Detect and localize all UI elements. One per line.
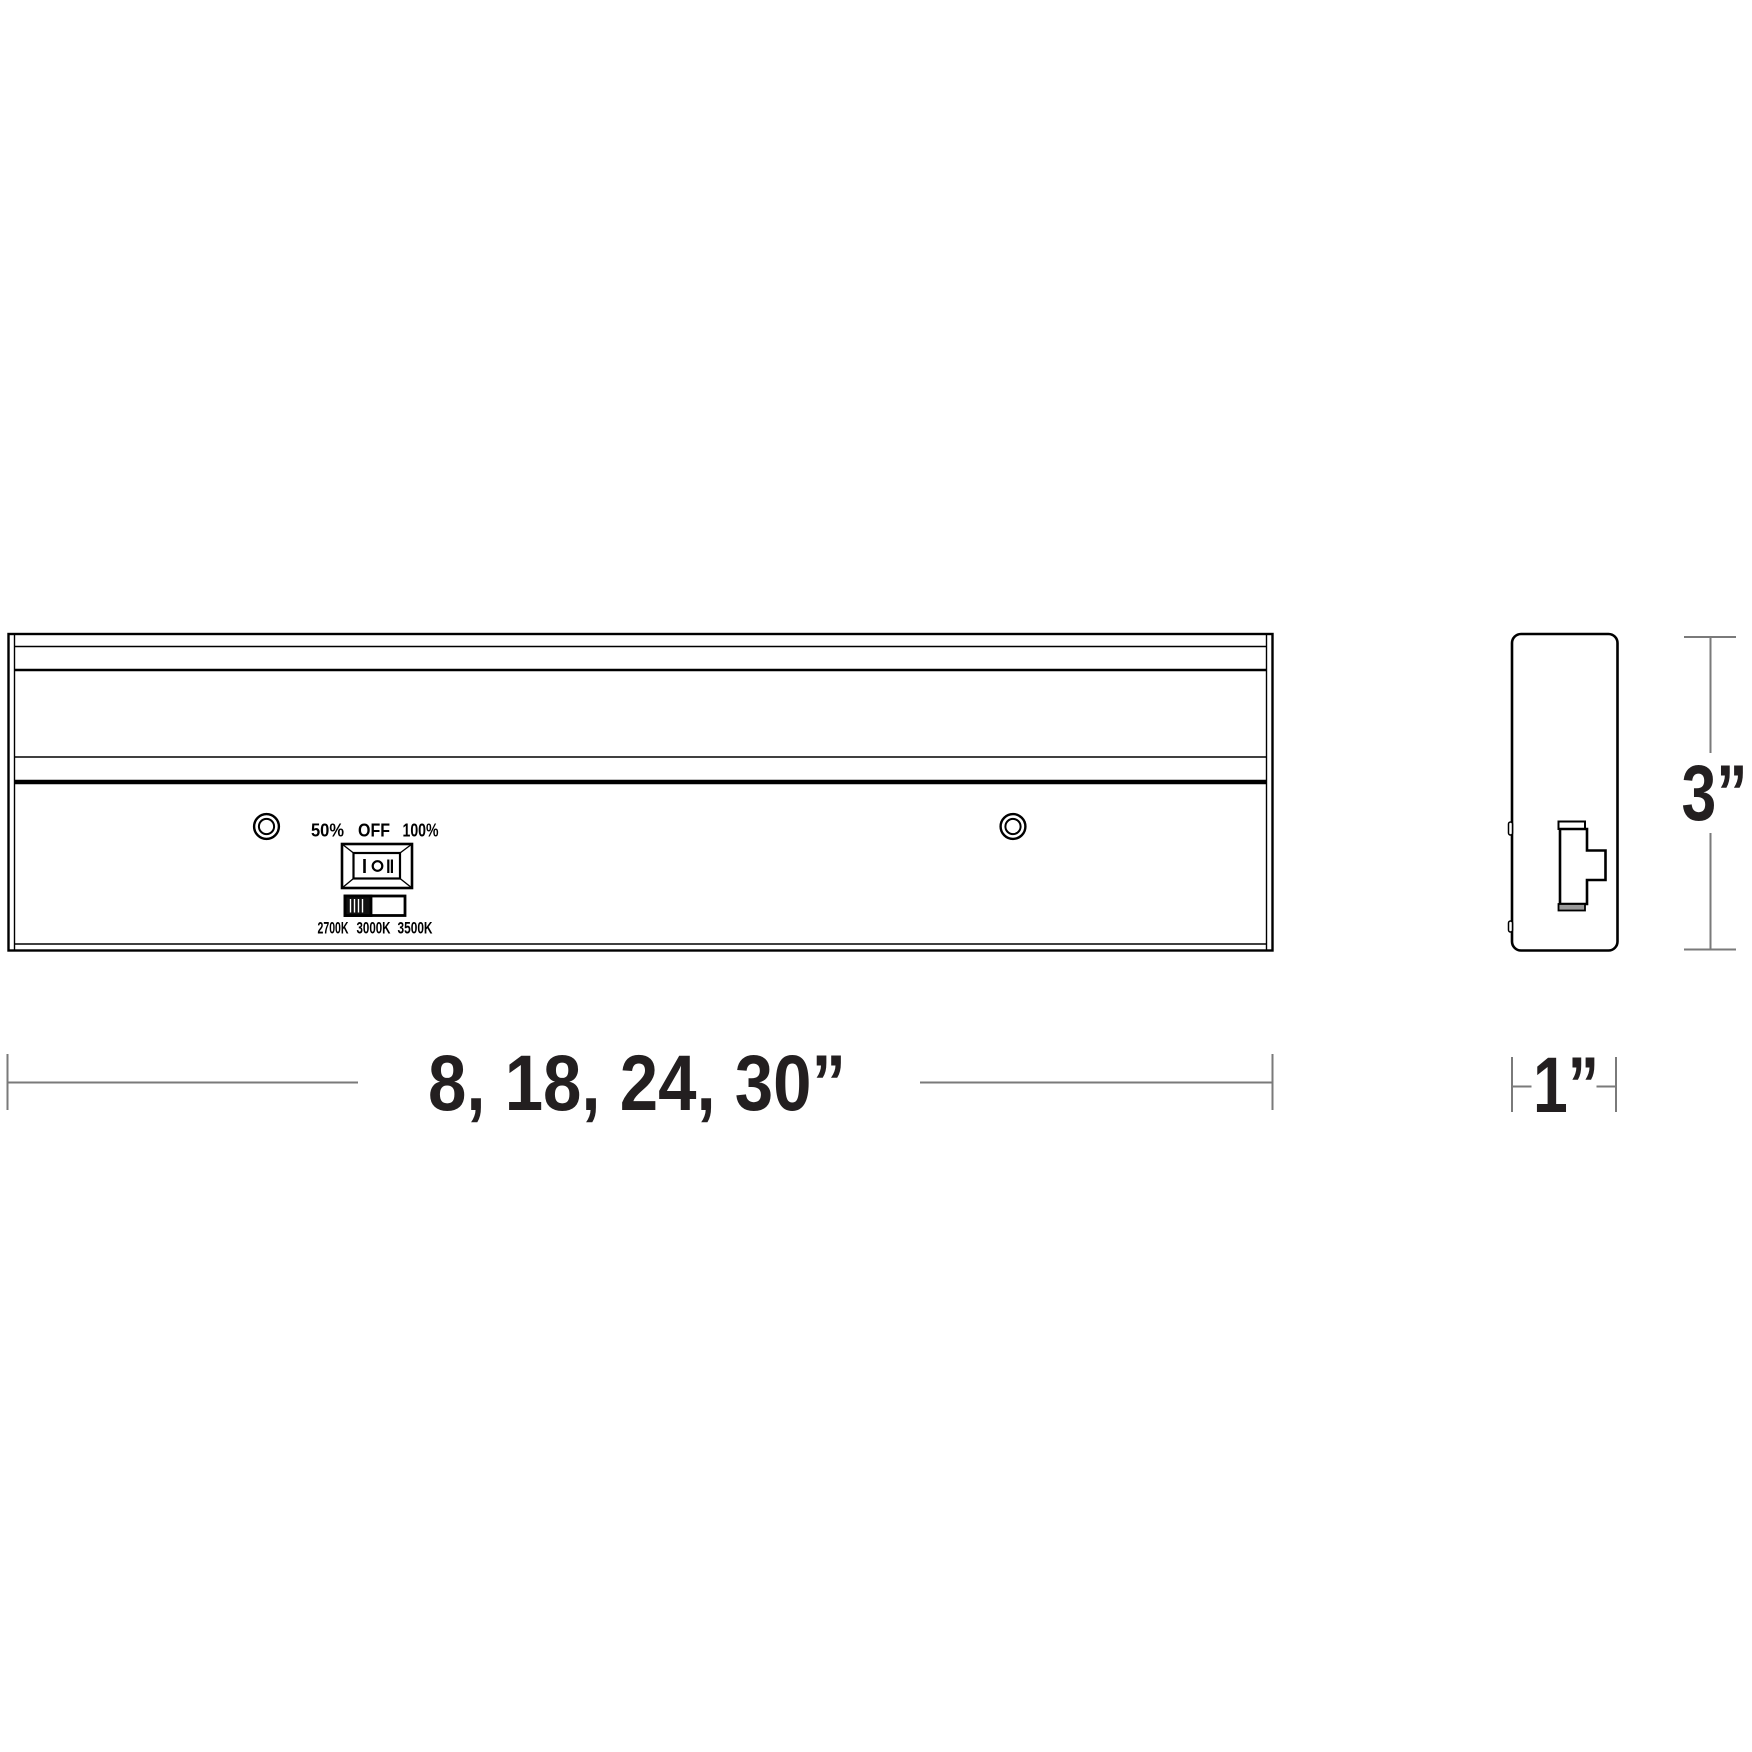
length-dimension-text: 8, 18, 24, 30” <box>428 1038 846 1127</box>
cct-slider-icon <box>345 896 405 916</box>
cct-label-3000k: 3000K <box>357 920 391 938</box>
side-view <box>1509 634 1618 951</box>
dimmer-label-off: OFF <box>358 820 390 841</box>
depth-dimension: 1” <box>1512 1040 1616 1129</box>
dimmer-label-50: 50% <box>311 820 344 841</box>
cct-label-3500k: 3500K <box>398 920 433 938</box>
rocker-inner <box>354 853 401 879</box>
cct-label-2700k: 2700K <box>318 920 349 938</box>
side-edge-notch <box>1509 921 1513 932</box>
rocker-switch-icon <box>342 844 412 888</box>
dimmer-label-100: 100% <box>403 820 439 841</box>
depth-dimension-text: 1” <box>1533 1040 1599 1129</box>
length-dimension: 8, 18, 24, 30” <box>8 1038 1273 1127</box>
height-dimension-text: 3” <box>1682 748 1748 837</box>
side-switch-bottom-lip <box>1559 904 1586 911</box>
dimension-drawing: 50% OFF 100% 2700K 3000K 3500K <box>0 0 1752 1752</box>
front-view: 50% OFF 100% 2700K 3000K 3500K <box>9 634 1273 951</box>
side-edge-notch <box>1509 822 1513 835</box>
front-view-outline <box>9 634 1273 951</box>
height-dimension: 3” <box>1682 637 1748 950</box>
